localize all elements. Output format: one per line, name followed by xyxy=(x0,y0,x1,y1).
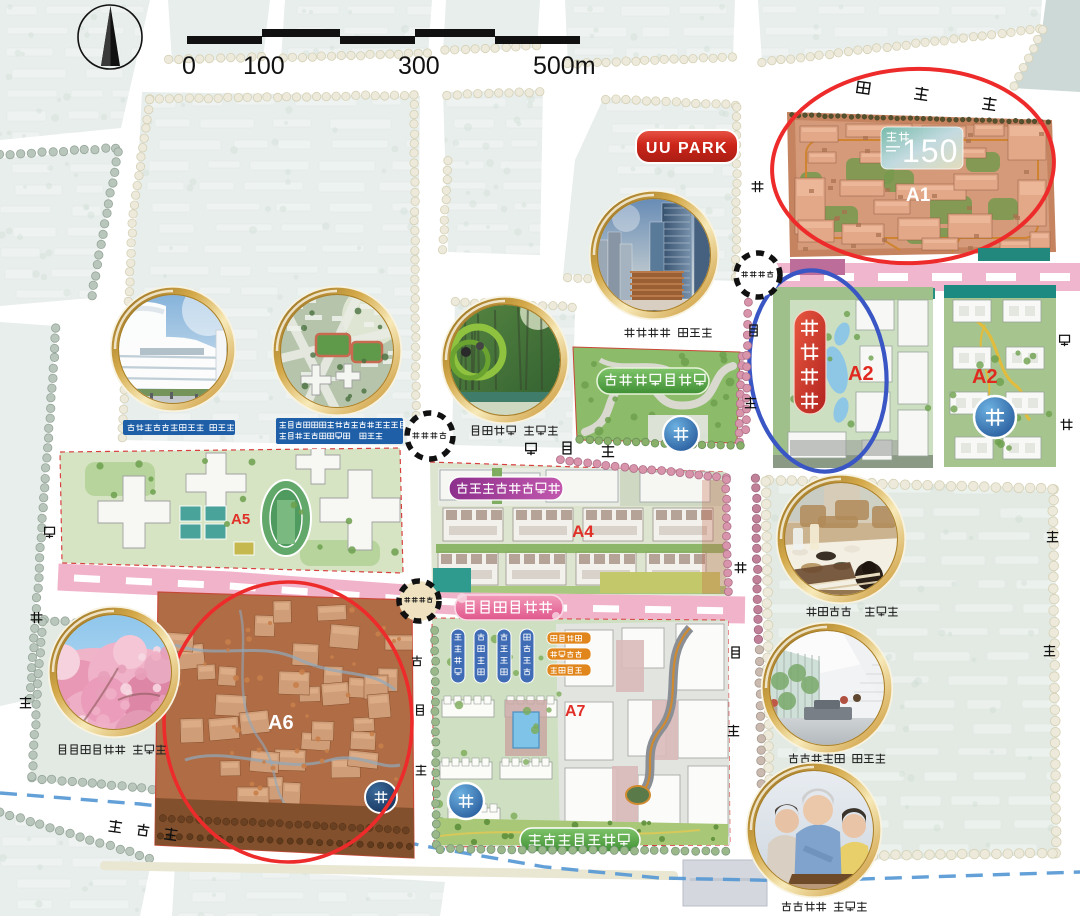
svg-text:300: 300 xyxy=(398,52,440,80)
svg-text:A4: A4 xyxy=(572,522,594,541)
svg-text:A2: A2 xyxy=(972,366,998,388)
svg-text:A2: A2 xyxy=(848,363,874,385)
svg-text:A1: A1 xyxy=(906,185,931,206)
svg-text:A6: A6 xyxy=(268,712,294,734)
svg-text:500m: 500m xyxy=(533,52,596,80)
svg-text:A5: A5 xyxy=(231,511,250,528)
svg-text:UU PARK: UU PARK xyxy=(646,140,728,157)
svg-text:A7: A7 xyxy=(565,703,586,720)
svg-text:0: 0 xyxy=(182,52,196,80)
svg-text:100: 100 xyxy=(243,52,285,80)
svg-text:150: 150 xyxy=(902,133,958,169)
